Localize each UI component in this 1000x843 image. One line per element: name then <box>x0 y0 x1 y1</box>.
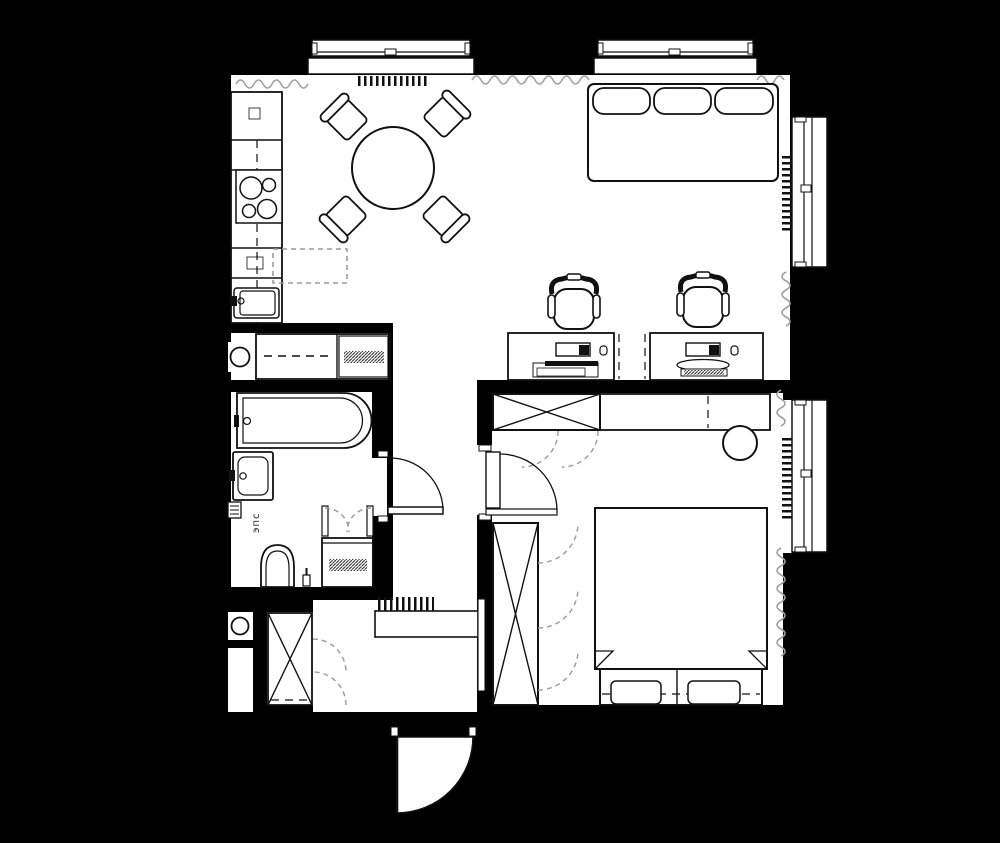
wall-mirror <box>478 599 485 691</box>
dryer-hatch <box>329 559 367 571</box>
electrical-panel-label: эпс <box>251 512 262 533</box>
washbasin <box>229 452 273 500</box>
pillow <box>611 681 661 704</box>
washing-machine-hatch <box>344 351 384 363</box>
window-handle <box>801 470 811 477</box>
niche-strip <box>228 648 253 712</box>
double-bed <box>595 508 767 705</box>
toilet <box>261 545 294 587</box>
kitchen-sink <box>231 288 279 318</box>
floor-plan: эпс <box>0 0 1000 843</box>
cooktop <box>236 170 282 223</box>
window-handle <box>669 49 680 55</box>
bedroom-doorway <box>477 445 492 515</box>
sofa-cushion <box>654 88 711 114</box>
sofa-cushion <box>715 88 773 114</box>
dining-table <box>352 127 434 209</box>
window-handle <box>385 49 396 55</box>
faucet-icon <box>231 296 237 306</box>
floor-plan-canvas: эпс <box>0 0 1000 843</box>
window-handle <box>801 185 811 192</box>
shoe-bench <box>375 611 478 637</box>
window-right-bedroom <box>792 400 827 552</box>
pillow <box>688 681 740 704</box>
window-right-living <box>792 117 827 267</box>
bed-duvet <box>595 508 767 669</box>
door-threshold <box>486 509 557 515</box>
mouse <box>731 346 738 355</box>
basin-faucet-icon <box>229 470 235 481</box>
bathtub <box>234 393 372 448</box>
mouse <box>600 346 607 355</box>
door-leaf <box>388 507 443 514</box>
sofa-cushion <box>593 88 650 114</box>
window-sill <box>308 58 474 74</box>
stool <box>723 426 757 460</box>
window-sill <box>594 58 757 74</box>
tub-faucet-icon <box>234 415 239 427</box>
sofa <box>588 84 778 181</box>
